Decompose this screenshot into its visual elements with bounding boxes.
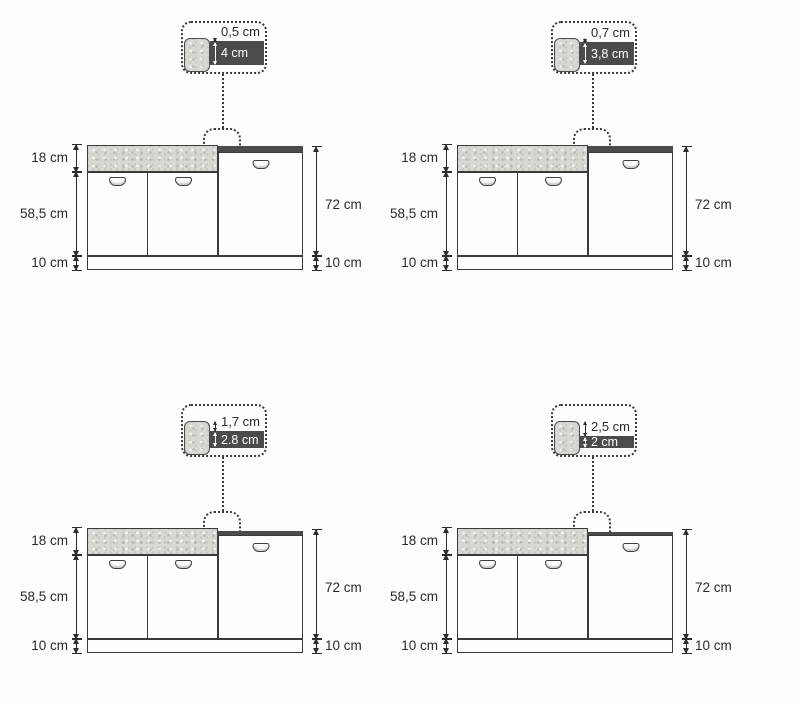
overhang-dimension-label: 1,7 cm bbox=[221, 414, 260, 429]
dimension-label-18cm: 18 cm bbox=[376, 533, 438, 548]
cabinet-drawing bbox=[457, 528, 673, 653]
dimension-line-left-bottom bbox=[76, 639, 77, 653]
overhang-dimension-arrow bbox=[585, 39, 586, 42]
detail-callout-box: 1,7 cm 2.8 cm bbox=[181, 404, 267, 457]
cabinet-drawing bbox=[87, 528, 303, 653]
arrowhead-down-icon bbox=[213, 61, 217, 65]
end-panel-band bbox=[457, 145, 588, 172]
end-panel-band bbox=[457, 528, 588, 555]
dimension-tick bbox=[682, 270, 692, 271]
dimension-label-18cm: 18 cm bbox=[6, 150, 68, 165]
dimension-label-10cm-left: 10 cm bbox=[376, 638, 438, 653]
worktop-diagram: 0,5 cm 4 cm bbox=[0, 0, 380, 310]
dimension-line-right-top bbox=[686, 147, 687, 256]
thickness-dimension-arrow bbox=[215, 433, 216, 447]
detail-callout-box: 2,5 cm 2 cm bbox=[551, 404, 637, 457]
door-handle bbox=[109, 177, 126, 186]
dimension-tick bbox=[72, 255, 82, 256]
left-cabinet-doors bbox=[457, 555, 588, 639]
dimension-label-10cm-left: 10 cm bbox=[6, 638, 68, 653]
plinth-base bbox=[457, 256, 673, 270]
dimension-tick bbox=[72, 270, 82, 271]
arrowhead-down-icon bbox=[583, 60, 587, 64]
door-handle bbox=[479, 177, 496, 186]
plinth-base bbox=[457, 639, 673, 653]
dimension-tick bbox=[682, 653, 692, 654]
door-handle bbox=[622, 543, 639, 552]
end-panel-band bbox=[87, 145, 218, 172]
thickness-dimension-label: 4 cm bbox=[221, 41, 248, 65]
door-separator-line bbox=[147, 173, 148, 255]
end-panel-profile bbox=[554, 38, 580, 72]
dimension-label-58-5cm: 58,5 cm bbox=[376, 589, 438, 604]
dimension-tick bbox=[682, 146, 692, 147]
right-cabinet-door bbox=[588, 535, 673, 639]
dimension-tick bbox=[72, 527, 82, 528]
dimension-tick bbox=[312, 529, 322, 530]
dimension-line-left-top bbox=[446, 528, 447, 555]
thickness-dimension-label: 3,8 cm bbox=[591, 42, 629, 65]
door-handle bbox=[479, 560, 496, 569]
arrowhead-up-icon bbox=[213, 432, 217, 436]
dimension-tick bbox=[312, 270, 322, 271]
door-handle bbox=[175, 177, 192, 186]
dimension-tick bbox=[72, 638, 82, 639]
dimension-tick bbox=[72, 144, 82, 145]
plinth-base bbox=[87, 639, 303, 653]
dimension-line-right-bottom bbox=[686, 639, 687, 653]
arrowhead-down-icon bbox=[213, 443, 217, 447]
dimension-line-right-bottom bbox=[686, 256, 687, 270]
dimension-label-10cm-left: 10 cm bbox=[376, 255, 438, 270]
dimension-tick bbox=[442, 255, 452, 256]
end-panel-profile bbox=[554, 421, 580, 455]
door-handle bbox=[622, 160, 639, 169]
dimension-label-72cm: 72 cm bbox=[325, 197, 362, 212]
dimension-tick bbox=[442, 270, 452, 271]
worktop-diagram: 1,7 cm 2.8 cm bbox=[0, 383, 380, 693]
dimension-line-right-top bbox=[686, 530, 687, 639]
arrowhead-up-icon bbox=[213, 42, 217, 46]
thickness-dimension-label: 2 cm bbox=[591, 436, 618, 448]
dimension-tick bbox=[442, 144, 452, 145]
door-handle bbox=[252, 543, 269, 552]
worktop-diagram: 0,7 cm 3,8 cm bbox=[370, 0, 750, 310]
end-panel-profile bbox=[184, 38, 210, 72]
end-panel-band bbox=[87, 528, 218, 555]
dimension-line-left-top bbox=[76, 528, 77, 555]
dimension-line-left-middle bbox=[76, 555, 77, 639]
door-handle bbox=[252, 160, 269, 169]
dimension-line-left-middle bbox=[446, 172, 447, 256]
dimension-label-10cm-right: 10 cm bbox=[695, 638, 732, 653]
dimension-line-left-bottom bbox=[446, 639, 447, 653]
door-handle bbox=[109, 560, 126, 569]
dimension-label-58-5cm: 58,5 cm bbox=[6, 206, 68, 221]
overhang-dimension-label: 0,7 cm bbox=[591, 25, 630, 40]
callout-connector-line bbox=[592, 457, 594, 511]
dimension-label-18cm: 18 cm bbox=[6, 533, 68, 548]
dimension-line-right-bottom bbox=[316, 639, 317, 653]
door-handle bbox=[545, 560, 562, 569]
dimension-tick bbox=[312, 146, 322, 147]
dimension-line-left-bottom bbox=[446, 256, 447, 270]
dimension-tick bbox=[682, 529, 692, 530]
dimension-line-right-top bbox=[316, 530, 317, 639]
dimension-tick bbox=[442, 171, 452, 172]
door-separator-line bbox=[147, 556, 148, 638]
dimension-label-72cm: 72 cm bbox=[695, 580, 732, 595]
overhang-dimension-label: 0,5 cm bbox=[221, 24, 260, 39]
arrowhead-up-icon bbox=[583, 421, 587, 425]
dimension-tick bbox=[312, 255, 322, 256]
dimension-label-10cm-right: 10 cm bbox=[325, 638, 362, 653]
right-cabinet-door bbox=[588, 152, 673, 256]
left-cabinet-doors bbox=[87, 172, 218, 256]
overhang-dimension-label: 2,5 cm bbox=[591, 419, 630, 434]
dimension-line-left-top bbox=[76, 145, 77, 172]
door-handle bbox=[175, 560, 192, 569]
thickness-dimension-arrow bbox=[215, 43, 216, 64]
dimension-line-right-top bbox=[316, 147, 317, 256]
dimension-tick bbox=[442, 554, 452, 555]
dimension-tick bbox=[682, 255, 692, 256]
plinth-base bbox=[87, 256, 303, 270]
dimension-line-left-bottom bbox=[76, 256, 77, 270]
overhang-dimension-arrow bbox=[585, 422, 586, 436]
dimension-label-72cm: 72 cm bbox=[695, 197, 732, 212]
dimension-line-left-middle bbox=[76, 172, 77, 256]
overhang-dimension-arrow bbox=[215, 39, 216, 41]
detail-callout-box: 0,7 cm 3,8 cm bbox=[551, 21, 637, 74]
callout-connector-line bbox=[592, 74, 594, 128]
dimension-tick bbox=[442, 653, 452, 654]
end-panel-profile bbox=[184, 421, 210, 455]
dimension-label-18cm: 18 cm bbox=[376, 150, 438, 165]
door-separator-line bbox=[517, 173, 518, 255]
worktop-diagram: 2,5 cm 2 cm bbox=[370, 383, 750, 693]
dimension-tick bbox=[682, 638, 692, 639]
right-cabinet-door bbox=[218, 535, 303, 639]
dimension-line-right-bottom bbox=[316, 256, 317, 270]
dimension-label-58-5cm: 58,5 cm bbox=[6, 589, 68, 604]
left-cabinet-doors bbox=[457, 172, 588, 256]
thickness-dimension-label: 2.8 cm bbox=[221, 431, 259, 448]
cabinet-drawing bbox=[457, 145, 673, 270]
dimension-line-left-top bbox=[446, 145, 447, 172]
dimension-label-58-5cm: 58,5 cm bbox=[376, 206, 438, 221]
thickness-dimension-arrow bbox=[585, 44, 586, 64]
detail-callout-box: 0,5 cm 4 cm bbox=[181, 21, 267, 74]
arrowhead-up-icon bbox=[583, 43, 587, 47]
dimension-tick bbox=[312, 653, 322, 654]
dimension-label-10cm-right: 10 cm bbox=[325, 255, 362, 270]
door-separator-line bbox=[517, 556, 518, 638]
dimension-label-10cm-left: 10 cm bbox=[6, 255, 68, 270]
callout-connector-line bbox=[222, 457, 224, 511]
cabinet-drawing bbox=[87, 145, 303, 270]
thickness-dimension-arrow bbox=[585, 438, 586, 447]
dimension-tick bbox=[72, 653, 82, 654]
callout-connector-line bbox=[222, 74, 224, 128]
dimension-tick bbox=[312, 638, 322, 639]
overhang-dimension-arrow bbox=[215, 422, 216, 431]
dimension-line-left-middle bbox=[446, 555, 447, 639]
right-cabinet-door bbox=[218, 152, 303, 256]
arrowhead-up-icon bbox=[583, 437, 587, 441]
dimension-tick bbox=[442, 638, 452, 639]
dimension-label-10cm-right: 10 cm bbox=[695, 255, 732, 270]
arrowhead-up-icon bbox=[213, 421, 217, 425]
dimension-tick bbox=[442, 527, 452, 528]
dimension-label-72cm: 72 cm bbox=[325, 580, 362, 595]
worktop-diagrams-canvas: 0,5 cm 4 cm bbox=[0, 0, 800, 706]
dimension-tick bbox=[72, 171, 82, 172]
door-handle bbox=[545, 177, 562, 186]
arrowhead-down-icon bbox=[583, 444, 587, 448]
left-cabinet-doors bbox=[87, 555, 218, 639]
dimension-tick bbox=[72, 554, 82, 555]
